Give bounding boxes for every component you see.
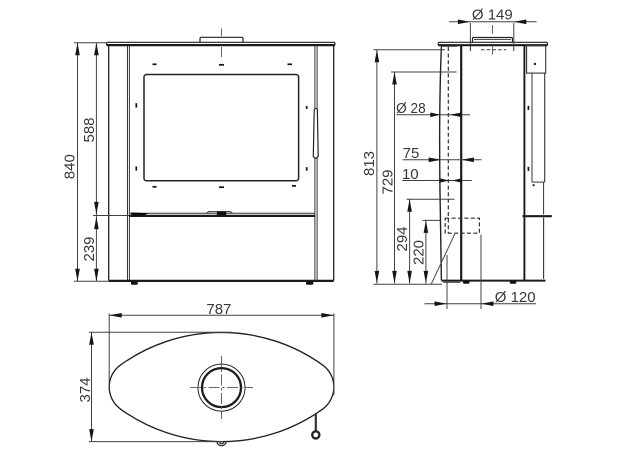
svg-text:Ø 149: Ø 149 bbox=[472, 7, 513, 24]
svg-text:Ø 28: Ø 28 bbox=[396, 100, 426, 117]
svg-text:813: 813 bbox=[361, 151, 378, 176]
svg-text:Ø 120: Ø 120 bbox=[495, 289, 536, 306]
svg-text:10: 10 bbox=[402, 166, 419, 183]
svg-text:729: 729 bbox=[380, 169, 397, 194]
svg-text:840: 840 bbox=[62, 154, 79, 179]
svg-text:787: 787 bbox=[206, 301, 231, 318]
svg-text:374: 374 bbox=[77, 377, 94, 402]
svg-text:588: 588 bbox=[81, 117, 98, 142]
svg-text:220: 220 bbox=[411, 240, 428, 265]
svg-text:239: 239 bbox=[81, 236, 98, 261]
svg-text:75: 75 bbox=[403, 145, 420, 162]
svg-text:294: 294 bbox=[394, 226, 411, 251]
